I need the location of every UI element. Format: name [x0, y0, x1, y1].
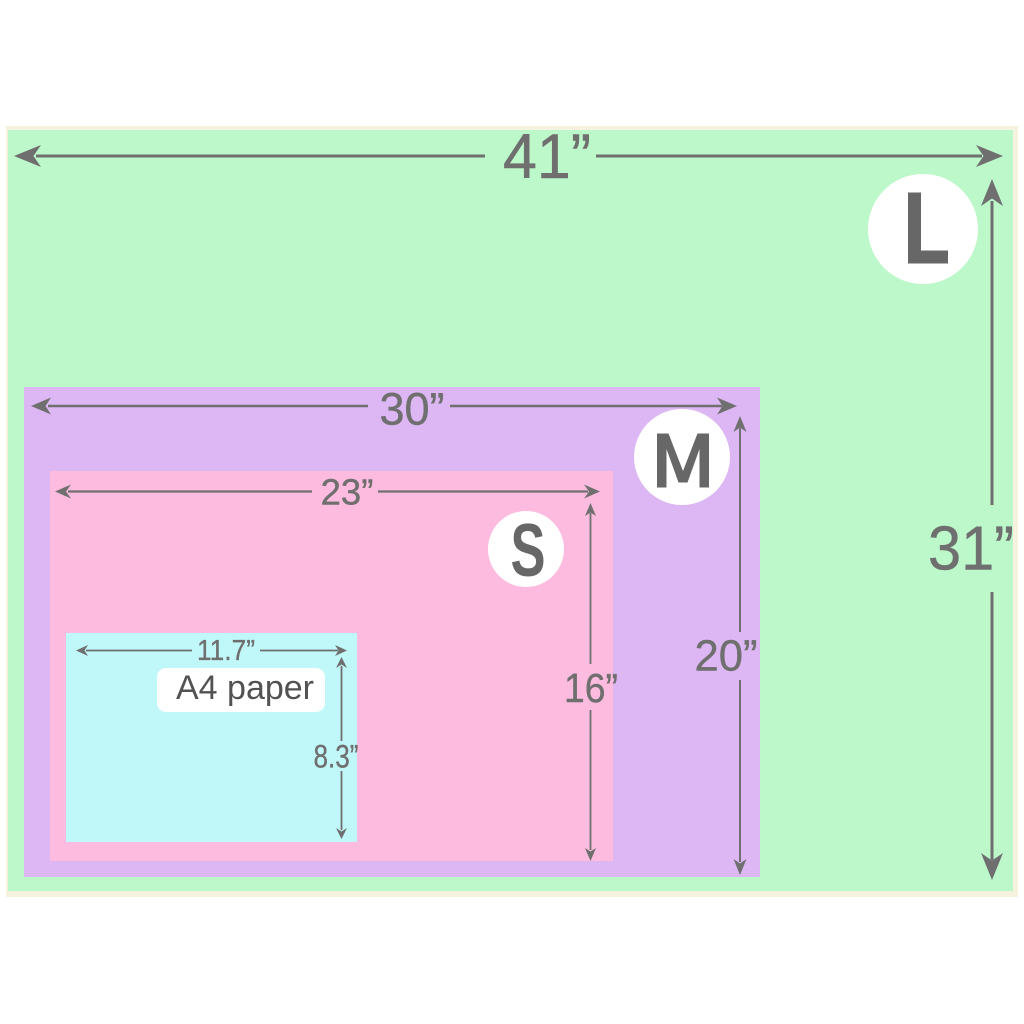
svg-text:20”: 20”: [695, 632, 758, 681]
svg-text:A4 paper: A4 paper: [176, 669, 314, 707]
svg-text:16”: 16”: [564, 665, 618, 711]
svg-text:41”: 41”: [503, 122, 591, 192]
svg-text:31”: 31”: [928, 515, 1014, 584]
svg-text:S: S: [511, 508, 546, 592]
svg-text:30”: 30”: [379, 384, 444, 435]
svg-text:11.7”: 11.7”: [197, 635, 255, 667]
svg-text:23”: 23”: [321, 472, 374, 513]
svg-text:8.3”: 8.3”: [314, 739, 359, 775]
